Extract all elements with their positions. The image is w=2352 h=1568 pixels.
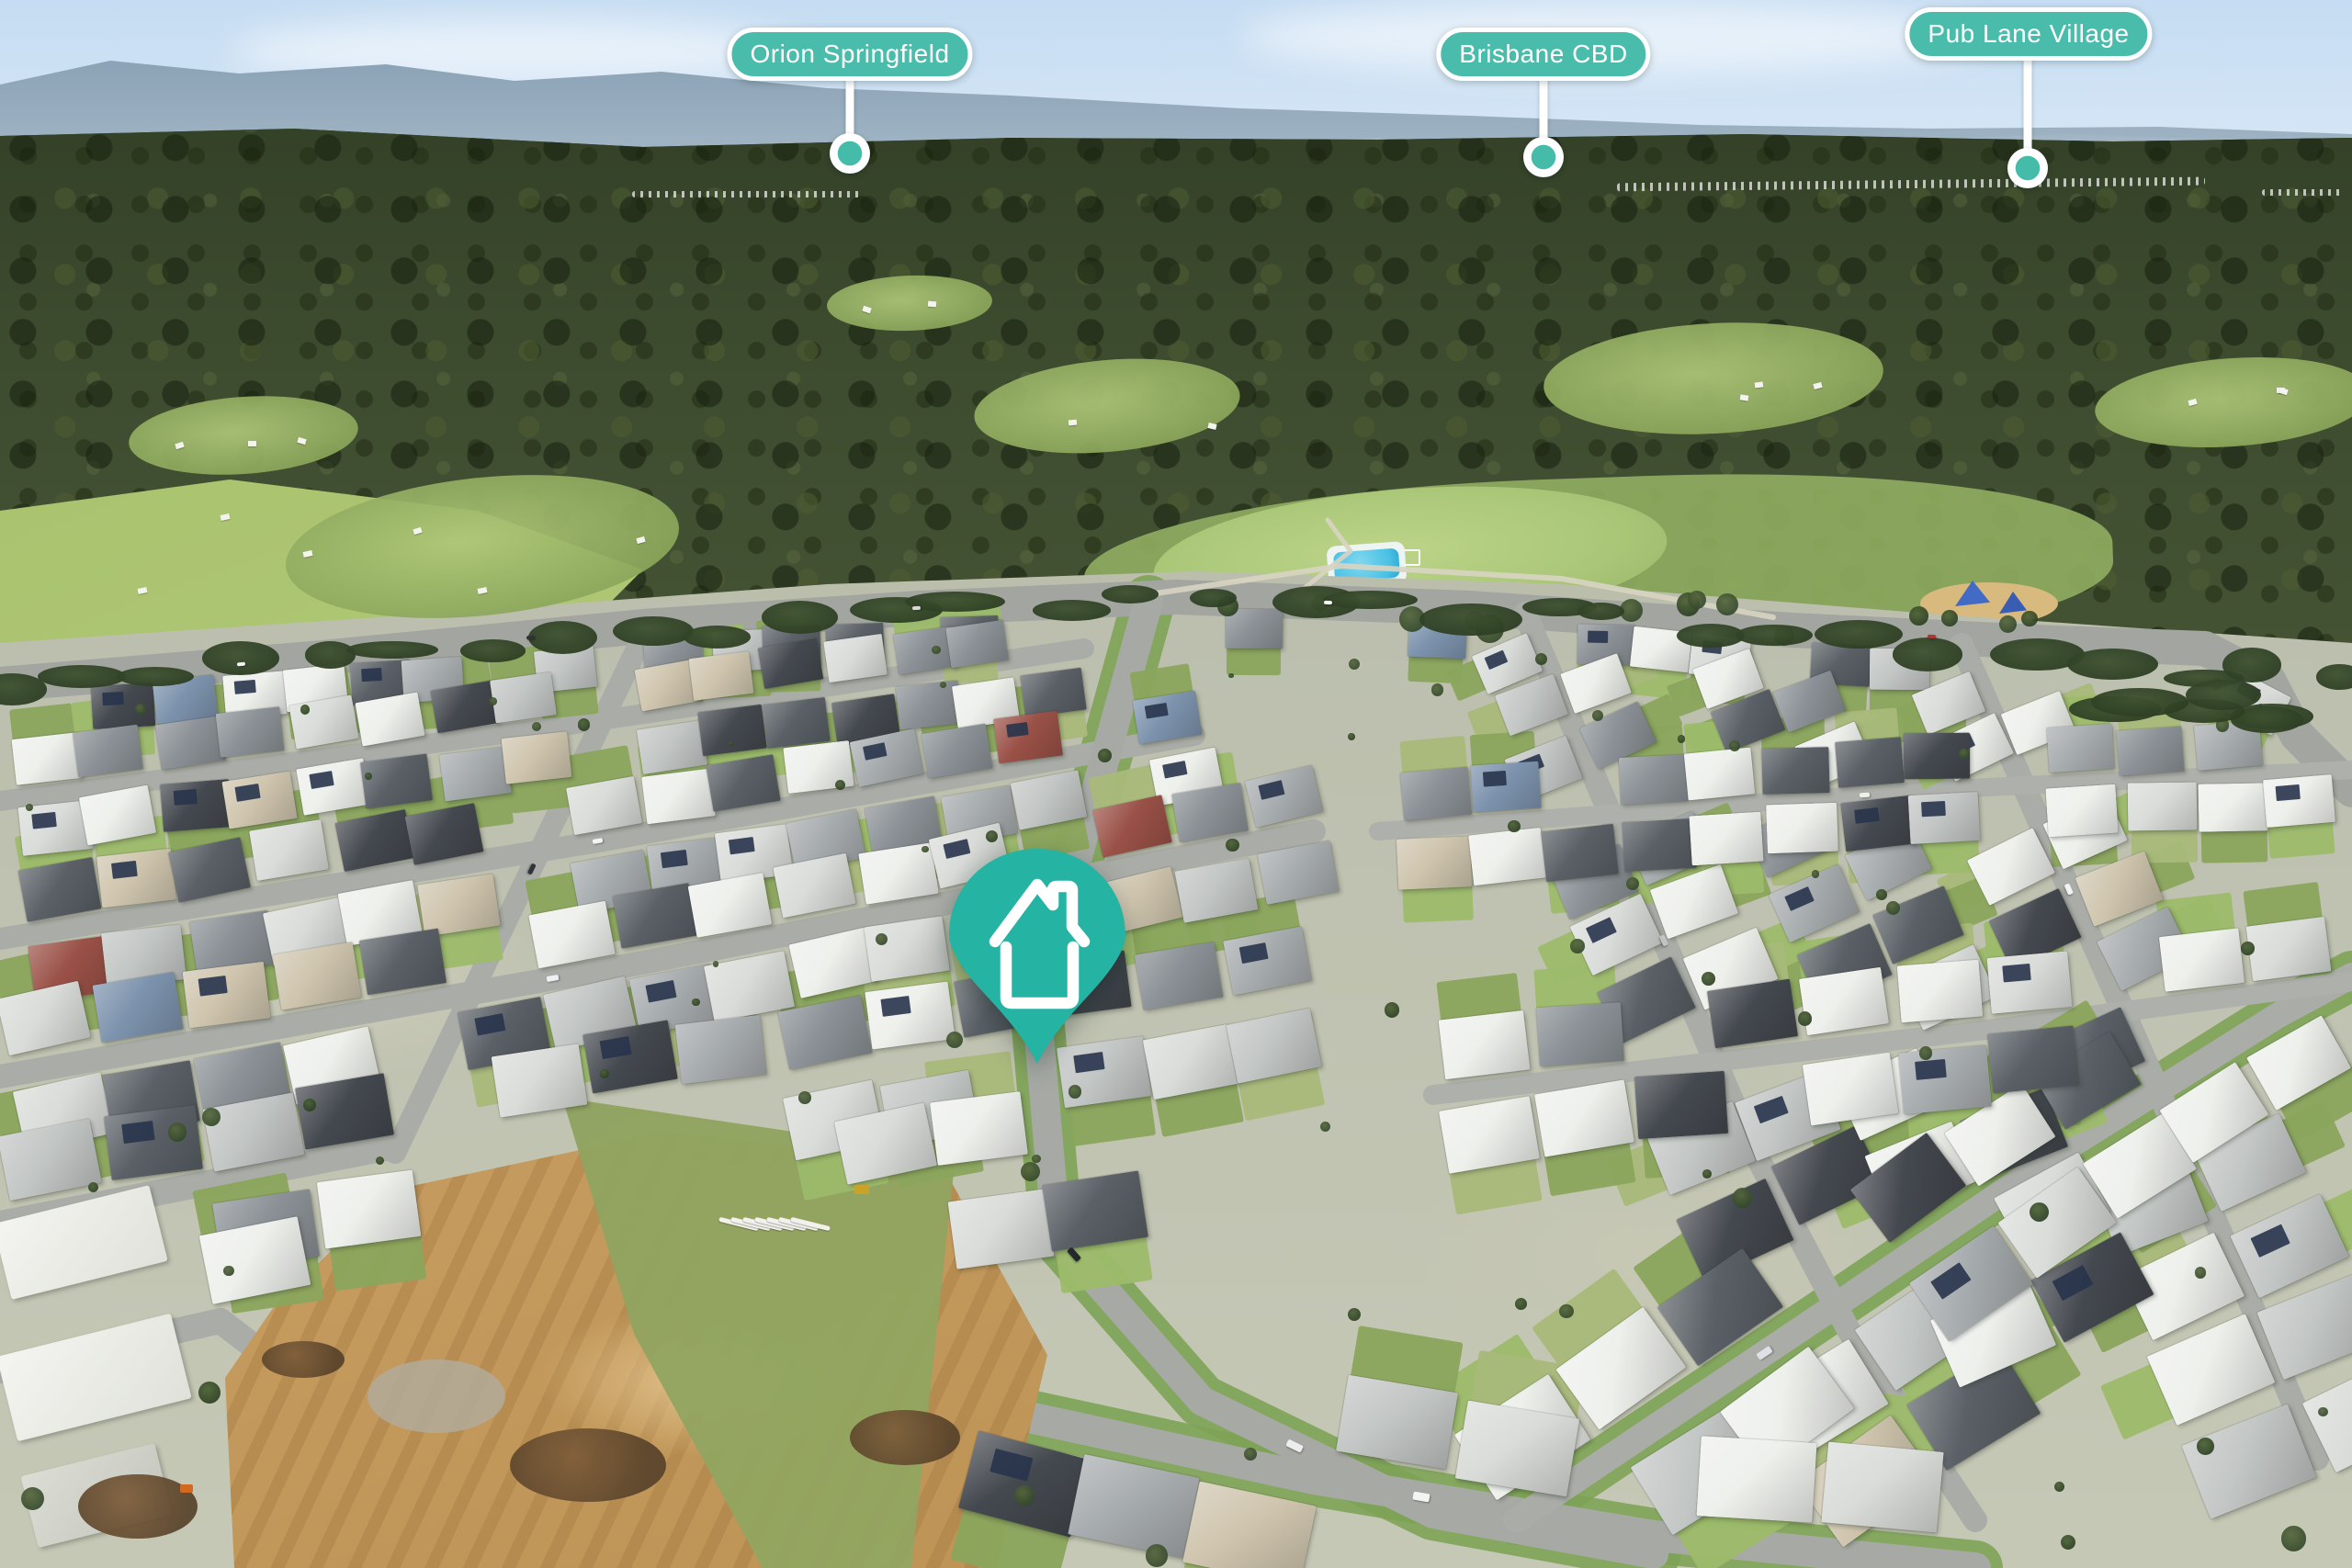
tree [1626, 877, 1639, 890]
house-roof [921, 724, 992, 779]
house-roof [641, 768, 715, 824]
distant-house [1739, 394, 1748, 400]
tree [2318, 1407, 2327, 1416]
house-roof [1696, 1437, 1816, 1524]
tree-clump [1033, 600, 1111, 620]
tree-clump [460, 639, 526, 661]
tree [2030, 1202, 2049, 1222]
tree [2197, 1438, 2214, 1455]
house-roof [2046, 723, 2114, 773]
tree [21, 1487, 44, 1510]
tree-clump [2067, 649, 2158, 680]
solar-panels [2002, 964, 2031, 983]
tree [198, 1382, 221, 1404]
tree [300, 705, 310, 714]
house-roof [1799, 967, 1889, 1036]
marker-label: Brisbane CBD [1459, 39, 1627, 68]
solar-panels [475, 1013, 506, 1036]
car [1285, 1439, 1304, 1453]
solar-panels [1588, 631, 1608, 644]
tree [1812, 870, 1819, 877]
tree-clump [1190, 589, 1237, 608]
house-roof [1986, 952, 2073, 1015]
house-roof [1623, 818, 1697, 873]
tree-clump [1815, 620, 1904, 649]
house-roof [1171, 783, 1248, 841]
house-roof [2045, 784, 2118, 837]
solar-panels [1854, 807, 1880, 825]
house-roof [316, 1169, 421, 1248]
tree [1941, 610, 1958, 626]
aerial-photo: Orion Springfield Brisbane CBD Pub Lane … [0, 0, 2352, 1568]
solar-panels [2052, 1266, 2093, 1301]
house-roof [1226, 609, 1283, 649]
house-roof [1898, 1045, 1991, 1114]
tree-clump [1893, 637, 1963, 671]
solar-panels [1931, 1263, 1972, 1300]
marker-dot [2007, 148, 2048, 188]
solar-panels [2251, 1224, 2290, 1258]
tree [1702, 1169, 1712, 1179]
distant-house [1755, 381, 1764, 388]
house-roof [1821, 1441, 1943, 1532]
house-roof [104, 1105, 203, 1180]
tree [376, 1156, 384, 1165]
tree [1515, 1298, 1527, 1310]
house-roof [1396, 837, 1472, 891]
house-roof [2245, 917, 2331, 981]
tree-clump [1102, 585, 1159, 604]
house-roof [2116, 726, 2185, 776]
tree [1226, 839, 1239, 852]
tree-clump [1419, 604, 1522, 637]
tree [1688, 591, 1707, 610]
solar-panels [863, 742, 888, 761]
tree [1320, 1122, 1330, 1132]
house-roof [160, 779, 232, 832]
house-roof [490, 671, 557, 723]
tree-clump [117, 667, 194, 686]
tree [1919, 1046, 1932, 1059]
tree [532, 722, 541, 731]
marker-label: Pub Lane Village [1928, 19, 2129, 48]
solar-panels [102, 691, 124, 705]
tree [1678, 735, 1685, 742]
tree [1228, 673, 1233, 678]
solar-panels [235, 784, 261, 801]
tree [578, 718, 590, 730]
house-roof [1897, 959, 1984, 1022]
concrete-patch [367, 1359, 505, 1433]
house-roof [1835, 738, 1905, 789]
car [1323, 601, 1331, 604]
house-roof [697, 705, 766, 757]
tree [1716, 593, 1738, 615]
forest-clearing [1541, 314, 1886, 442]
tree-clump [1323, 591, 1418, 610]
solar-panels [2276, 785, 2301, 802]
solar-panels [233, 680, 255, 694]
house-roof [1468, 828, 1546, 886]
tree-clump [38, 665, 126, 688]
house-roof [440, 747, 513, 802]
house-roof [360, 754, 434, 809]
tree [1508, 820, 1521, 833]
house-roof [96, 849, 175, 908]
tree [1535, 653, 1547, 665]
house-roof [1761, 747, 1829, 795]
tree [1348, 1308, 1361, 1321]
house-roof [1069, 1454, 1200, 1558]
house-roof [612, 884, 696, 949]
car [1756, 1346, 1772, 1360]
house-pin-icon [945, 846, 1129, 1068]
tree [2061, 1535, 2075, 1550]
solar-panels [361, 669, 382, 682]
tree-clump [2222, 648, 2281, 682]
location-marker-brisbane-cbd: Brisbane CBD [1436, 28, 1650, 81]
house-roof [1634, 1071, 1728, 1139]
marker-dot [1523, 137, 1564, 177]
tree [1729, 740, 1740, 751]
solar-panels [173, 790, 198, 807]
tree [932, 646, 941, 655]
tree [2021, 611, 2038, 627]
house-roof [945, 620, 1009, 669]
dirt-pile [510, 1428, 666, 1502]
house-roof [1439, 1010, 1531, 1079]
house-roof [73, 724, 144, 777]
solar-panels [310, 771, 334, 788]
solar-panels [881, 997, 911, 1018]
house-roof [1399, 766, 1472, 819]
tree [2241, 942, 2254, 954]
tree-clump [202, 641, 279, 675]
solar-panels [989, 1448, 1034, 1481]
house-roof [930, 1091, 1028, 1166]
tree [223, 1266, 234, 1277]
house-roof [1840, 795, 1916, 852]
forest-clearing [826, 273, 993, 333]
house-roof [155, 716, 226, 770]
tree [1385, 1002, 1400, 1018]
house-roof [2198, 783, 2267, 832]
house-roof [947, 1189, 1054, 1269]
house-roof [1803, 1053, 1899, 1126]
tree [1349, 659, 1360, 670]
tree-clump [762, 601, 839, 634]
tree [1244, 1448, 1257, 1461]
house-roof [1684, 748, 1756, 801]
house-roof [1619, 755, 1689, 806]
tree-clump [1577, 603, 1624, 620]
machinery [180, 1484, 193, 1493]
car [2064, 883, 2074, 895]
tree [1959, 749, 1970, 760]
distant-house [248, 441, 256, 446]
tree-clump [2316, 664, 2352, 689]
solar-panels [729, 836, 755, 854]
generated-scenery [0, 0, 2352, 1568]
forest-clearing [970, 349, 1244, 464]
solar-panels [122, 1121, 155, 1144]
tree [835, 780, 845, 790]
house-roof [501, 732, 571, 784]
tree [1069, 1085, 1081, 1098]
house-roof [92, 972, 183, 1043]
solar-panels [1915, 1059, 1946, 1080]
tree [1909, 606, 1928, 626]
solar-panels [1259, 780, 1284, 799]
tree [168, 1122, 187, 1142]
house-roof [1907, 792, 1980, 844]
dirt-pile [262, 1341, 345, 1378]
tree [489, 697, 497, 705]
tree [1014, 1485, 1035, 1506]
solar-panels [1753, 1096, 1789, 1124]
solar-panels [661, 850, 687, 868]
distant-house [220, 513, 230, 521]
solar-panels [1484, 650, 1507, 670]
solar-panels [1162, 761, 1187, 779]
tree [1098, 749, 1112, 762]
dirt-pile [850, 1410, 960, 1465]
tree [798, 1091, 811, 1104]
house-roof [183, 962, 271, 1029]
house-roof [417, 874, 500, 937]
house-roof [1987, 1026, 2079, 1095]
tree [986, 830, 998, 842]
house-roof [674, 1014, 766, 1083]
house-roof [1042, 1170, 1148, 1251]
tree [1570, 939, 1585, 953]
house-roof [993, 711, 1063, 763]
location-marker-orion-springfield: Orion Springfield [727, 28, 972, 81]
tree-clump [528, 621, 597, 654]
tree [135, 704, 146, 715]
house-roof [1542, 824, 1619, 882]
car [1860, 792, 1870, 797]
tree [1999, 615, 2017, 633]
house-roof [1020, 667, 1086, 717]
forest-clearing [278, 457, 685, 636]
house-roof [249, 819, 328, 881]
car [593, 838, 604, 844]
distant-house [1068, 419, 1077, 425]
house-roof [2182, 1404, 2317, 1519]
solar-panels [1006, 722, 1030, 739]
house-roof [1257, 840, 1339, 905]
house-roof [824, 634, 888, 682]
tree [1592, 710, 1603, 721]
tree [1021, 1162, 1040, 1181]
house-roof [1132, 691, 1201, 744]
forest-clearing [126, 389, 360, 481]
tree [88, 1182, 98, 1192]
tree-clump [2091, 688, 2188, 716]
tree-clump [684, 626, 751, 649]
tree-clump [346, 641, 438, 659]
house-roof [2263, 774, 2335, 828]
solar-panels [1920, 801, 1945, 817]
house-roof [1182, 1481, 1317, 1568]
solar-panels [1587, 917, 1618, 942]
solar-panels [645, 980, 676, 1002]
house-roof [688, 651, 753, 700]
tree-clump [1736, 625, 1812, 647]
tree [1702, 972, 1714, 985]
tree [1798, 1011, 1813, 1026]
tree-clump [305, 641, 356, 668]
car [527, 863, 537, 874]
solar-panels [31, 811, 57, 829]
tree [1348, 733, 1355, 740]
solar-panels [111, 861, 138, 879]
house-roof [637, 720, 707, 774]
tree-clump [613, 616, 695, 646]
house-roof [865, 982, 955, 1050]
tree [1876, 889, 1887, 900]
solar-panels [1483, 771, 1507, 786]
house-roof [491, 1043, 587, 1117]
distant-house [137, 587, 147, 594]
solar-panels [600, 1036, 632, 1059]
marker-label: Orion Springfield [750, 39, 949, 68]
tree [202, 1108, 220, 1126]
house-roof [12, 732, 83, 784]
forest-clearing [2092, 349, 2352, 457]
house-roof [359, 928, 447, 995]
location-marker-pub-lane-village: Pub Lane Village [1905, 7, 2152, 61]
distant-house [928, 301, 936, 308]
house-roof [2128, 783, 2198, 831]
house-roof [1245, 765, 1323, 828]
house-roof [1134, 942, 1223, 1010]
car [1413, 1492, 1430, 1502]
dirt-pile [78, 1474, 198, 1539]
house-roof [289, 695, 359, 750]
car [547, 975, 560, 982]
solar-panels [1238, 942, 1268, 964]
tree [729, 741, 733, 746]
house-roof [1707, 978, 1798, 1048]
house-roof [216, 706, 285, 758]
house-roof [1470, 761, 1541, 813]
machinery [854, 1185, 869, 1194]
house-roof [273, 942, 362, 1010]
house-roof [1690, 811, 1764, 865]
tree [692, 998, 699, 1006]
solar-panels [1145, 703, 1168, 719]
solar-panels [1784, 887, 1815, 912]
tree [2281, 1526, 2306, 1551]
tree [2054, 1482, 2064, 1492]
tree [1146, 1544, 1168, 1566]
house-roof [2159, 928, 2245, 992]
distant-house [1208, 423, 1217, 430]
marker-dot [830, 133, 870, 174]
house-roof [706, 754, 780, 812]
house-roof [762, 697, 830, 749]
tree [600, 1069, 608, 1077]
tree [1431, 683, 1444, 696]
house-roof [1536, 1002, 1624, 1066]
solar-panels [198, 976, 228, 996]
house-roof [1766, 802, 1838, 853]
